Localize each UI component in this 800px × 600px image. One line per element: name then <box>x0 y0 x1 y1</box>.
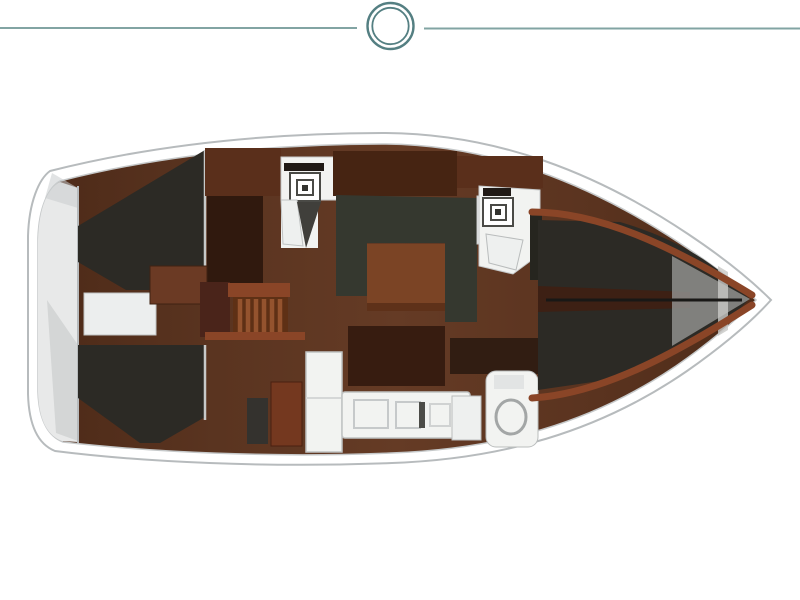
oven-unit <box>247 398 268 444</box>
boat-floor-plan-figure <box>0 0 800 600</box>
mid-head-label <box>284 163 324 171</box>
mid-head-sink-drain <box>302 185 308 191</box>
forward-head-label <box>483 188 511 196</box>
companionway-block <box>200 282 230 337</box>
nav-desk <box>150 266 207 304</box>
boat-floor-plan-page <box>0 0 800 600</box>
galley-refrigerator <box>306 352 342 452</box>
aft-head-door <box>452 396 481 440</box>
galley-trim <box>205 332 305 340</box>
berth-cushion <box>84 293 156 335</box>
header-divider <box>0 3 800 49</box>
saloon-table <box>367 244 445 311</box>
galley-cabinet <box>271 382 302 446</box>
saloon-table-edge <box>367 303 445 311</box>
overhead-cabinet-saloon <box>333 151 457 196</box>
wardrobe-locker <box>207 196 263 290</box>
aft-cabinet <box>205 148 281 196</box>
overhead-cabinet-forward <box>457 156 543 188</box>
ring-ornament-inner-circle <box>372 8 408 44</box>
toilet-tank <box>494 375 524 389</box>
aft-head-vanity <box>450 338 545 374</box>
forward-head-sink-drain <box>495 209 501 215</box>
companionway-rail <box>228 283 290 297</box>
galley-faucet-bar <box>419 402 425 428</box>
galley-bench <box>348 326 445 386</box>
